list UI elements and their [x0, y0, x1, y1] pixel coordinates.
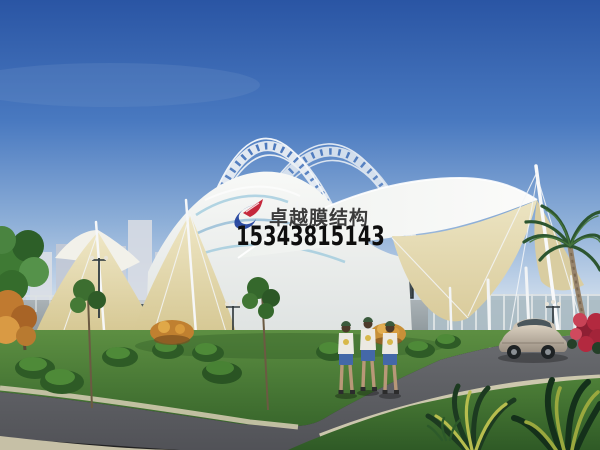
membrane-structure-scene: [0, 0, 600, 450]
rendering-image: 卓越膜结构 15343815143: [0, 0, 600, 450]
